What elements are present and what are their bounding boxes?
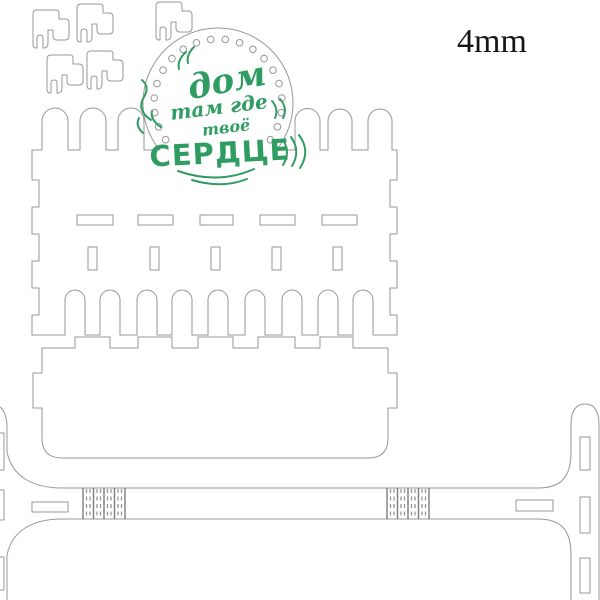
puzzle-clip	[87, 51, 123, 89]
slot	[0, 557, 4, 590]
slot	[333, 247, 342, 270]
living-hinge-right	[387, 488, 429, 519]
material-thickness-label: 4mm	[457, 23, 527, 60]
bottom-rail	[0, 404, 599, 600]
badge-dot	[270, 67, 277, 74]
slot	[0, 433, 4, 470]
rail-right-flare-bottom	[538, 519, 571, 600]
cut-layout-drawing: дом там где твоё СЕРДЦЕ	[0, 0, 600, 600]
slot	[260, 215, 295, 225]
badge-dot	[154, 80, 161, 87]
slot	[138, 215, 173, 225]
badge-dot	[274, 124, 281, 131]
slot	[0, 490, 4, 520]
shelf-slot-row	[77, 215, 357, 225]
second-panel-outline	[33, 337, 397, 458]
badge-dot	[222, 36, 229, 43]
living-hinge-left	[83, 488, 125, 519]
badge-dot	[250, 46, 257, 53]
badge-dot	[169, 55, 176, 62]
slot	[580, 497, 590, 533]
slot	[200, 215, 233, 225]
badge-dot	[151, 95, 158, 102]
rail-left-flare-bottom	[7, 519, 62, 600]
badge-dot	[160, 67, 167, 74]
slot	[322, 215, 357, 225]
second-panel	[33, 337, 397, 458]
badge-word-4: СЕРДЦЕ	[149, 132, 291, 173]
badge-dot	[193, 40, 200, 47]
slot	[580, 558, 590, 593]
puzzle-clip	[47, 55, 83, 93]
rail-left-flare-top	[0, 404, 62, 488]
puzzle-clip	[77, 4, 113, 42]
slot	[211, 247, 220, 270]
badge-dot	[207, 36, 214, 43]
slot	[32, 502, 68, 512]
slot	[88, 247, 97, 270]
slot	[77, 215, 113, 225]
slot	[272, 247, 281, 270]
puzzle-clip	[33, 10, 69, 48]
slot	[150, 247, 159, 270]
slot	[516, 500, 553, 511]
peg-slot-row	[88, 247, 342, 270]
badge-dot	[236, 40, 243, 47]
badge-dot	[276, 80, 283, 87]
laser-cut-template-canvas: дом там где твоё СЕРДЦЕ	[0, 0, 600, 600]
slot	[580, 437, 590, 470]
